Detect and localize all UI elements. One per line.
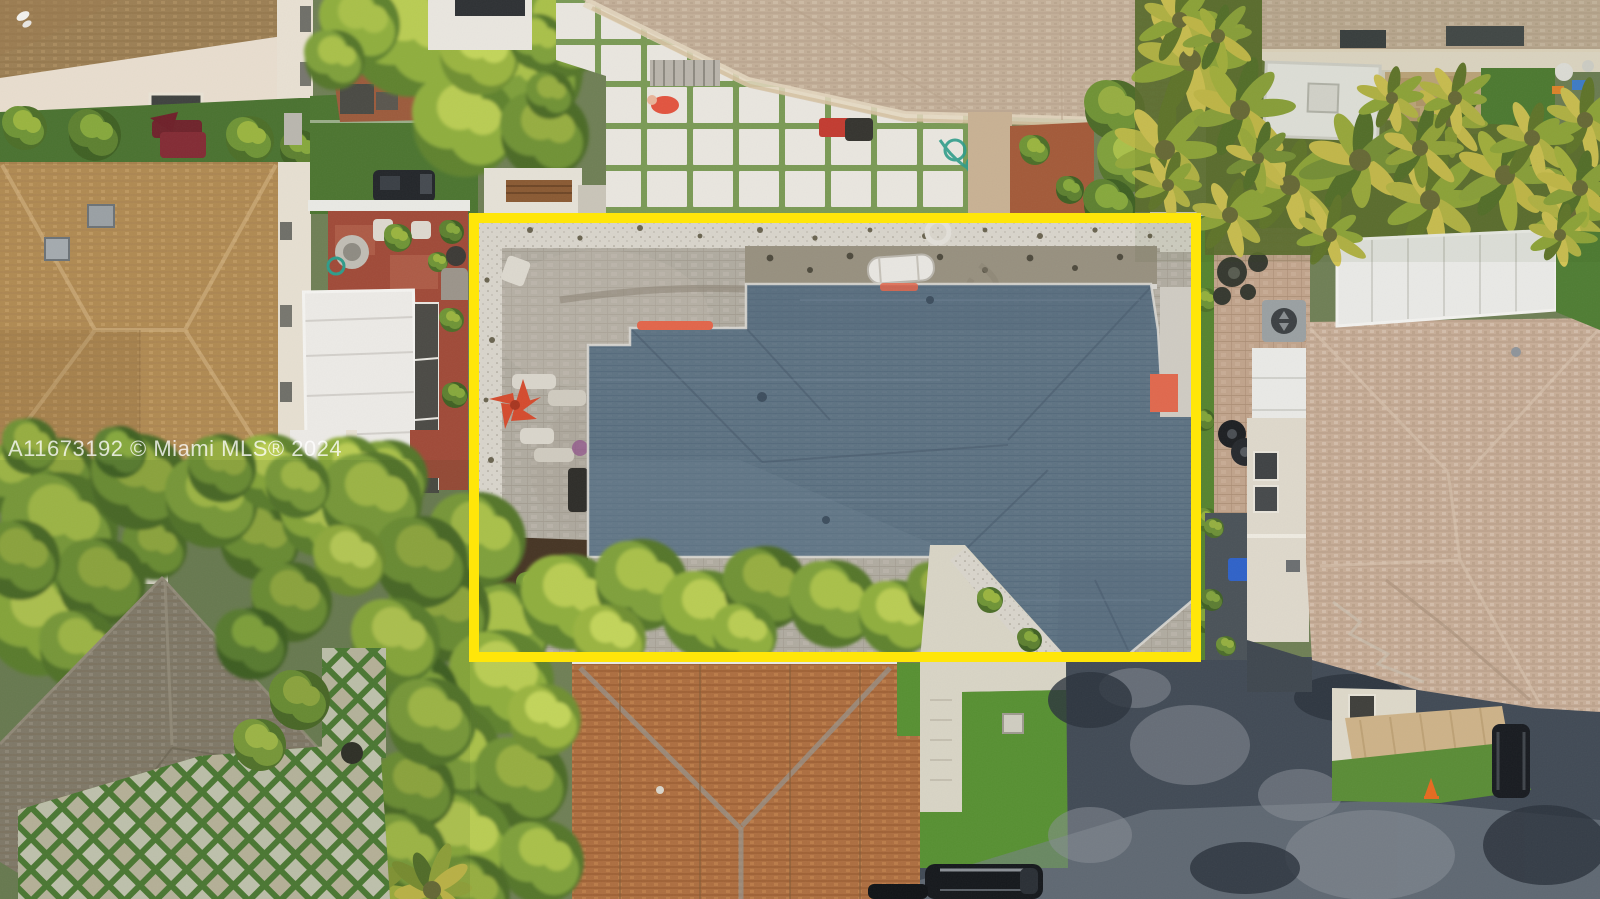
svg-text:A11673192 © Miami MLS® 2024: A11673192 © Miami MLS® 2024 [8, 436, 342, 461]
